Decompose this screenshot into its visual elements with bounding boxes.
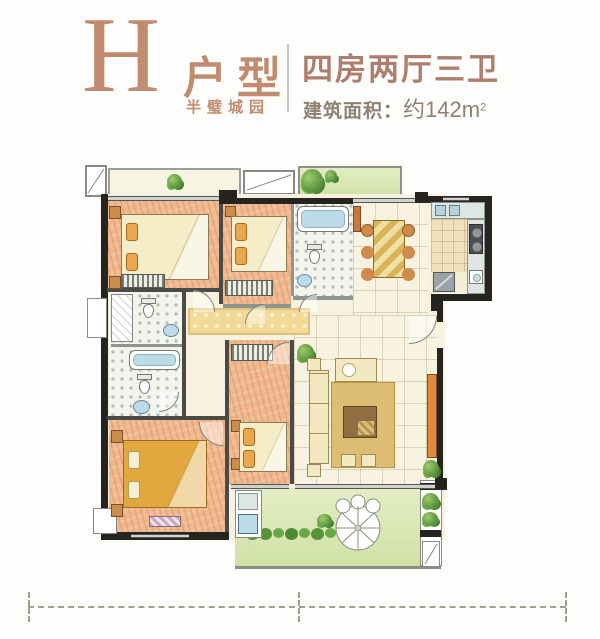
area-value: 约142m bbox=[403, 97, 480, 122]
daybed-icon bbox=[335, 358, 377, 382]
project-name: 半璧城园 bbox=[186, 96, 270, 117]
unit-letter: H bbox=[82, 2, 160, 110]
wall-baths-right bbox=[182, 292, 186, 416]
layout-summary: 四房两厅三卫 bbox=[302, 44, 500, 89]
nightstand-icon bbox=[111, 430, 123, 443]
wall-entry-top bbox=[437, 308, 443, 322]
stool-icon bbox=[341, 454, 356, 467]
kitchen-sink-basin1-icon bbox=[435, 205, 446, 216]
shower-icon bbox=[111, 294, 133, 342]
nightstand-icon bbox=[111, 504, 123, 517]
coffee-table-icon bbox=[343, 406, 377, 438]
sink-icon bbox=[133, 400, 150, 414]
dining-table-icon bbox=[373, 220, 405, 278]
side-table-icon bbox=[307, 464, 321, 477]
green-balcony-plant-icon bbox=[301, 169, 323, 193]
property-line-tick bbox=[565, 592, 567, 622]
side-table-icon bbox=[307, 358, 321, 371]
toilet-icon bbox=[137, 374, 152, 394]
area-line: 建筑面积：约142m2 bbox=[303, 92, 486, 124]
wall-bed2-bath bbox=[291, 204, 294, 296]
walkway-plant2-icon bbox=[422, 512, 438, 526]
bedroom1-dresser-icon bbox=[121, 274, 165, 288]
toilet-icon bbox=[307, 244, 323, 266]
wall-bath-top bbox=[293, 198, 353, 204]
window-master bbox=[131, 534, 189, 538]
kitchen-tile-area bbox=[431, 219, 467, 272]
washing-machine-icon bbox=[238, 514, 258, 534]
wall-kitchen-right bbox=[485, 196, 492, 301]
kitchen-sink2-icon bbox=[469, 270, 483, 284]
wall-bed3-living bbox=[290, 340, 294, 484]
wall-bed1-bottom bbox=[107, 288, 221, 292]
stove-icon bbox=[469, 224, 483, 254]
kitchen-sink-basin2-icon bbox=[449, 205, 460, 216]
sink-icon bbox=[297, 274, 312, 287]
window-kitchen bbox=[443, 197, 469, 201]
sliding-door-living-garden bbox=[295, 484, 435, 489]
nightstand-icon bbox=[109, 276, 121, 289]
header-divider bbox=[287, 44, 289, 112]
bathtub2-icon bbox=[129, 350, 180, 370]
floorplan-sheet: H 户型 半璧城园 四房两厅三卫 建筑面积：约142m2 bbox=[0, 0, 600, 639]
toilet-icon bbox=[141, 298, 156, 318]
wall-bathtop-bottom bbox=[293, 296, 353, 300]
ac-platform-left bbox=[87, 298, 107, 338]
green-balcony-plant2-icon bbox=[325, 170, 337, 182]
nightstand-icon bbox=[109, 206, 121, 219]
dining-chairs-left-icon bbox=[361, 224, 374, 237]
balcony-plant-icon bbox=[167, 174, 182, 189]
floorplan-drawing bbox=[85, 158, 495, 582]
area-label: 建筑面积： bbox=[303, 101, 403, 122]
wall-left bbox=[101, 194, 108, 534]
fridge-icon bbox=[433, 272, 455, 292]
garden-umbrella-icon bbox=[325, 492, 391, 558]
wall-master-bed3 bbox=[225, 340, 229, 532]
property-line bbox=[28, 606, 566, 608]
walkway-plant1-icon bbox=[422, 493, 439, 509]
wall-kitchen-bottom bbox=[431, 294, 492, 301]
property-line-tick bbox=[28, 592, 30, 622]
window-bedroom3 bbox=[231, 484, 289, 489]
bedroom2-bed-icon bbox=[231, 216, 287, 272]
wall-bath-master bbox=[107, 416, 227, 420]
wall-bedroom2-top bbox=[223, 198, 293, 204]
stool-icon bbox=[361, 454, 376, 467]
pier-top-b bbox=[415, 192, 428, 203]
walkway-pier-mid bbox=[420, 530, 441, 537]
laundry-sink bbox=[238, 493, 258, 510]
bathtub-icon bbox=[297, 206, 349, 232]
bedroom3-bed-icon bbox=[239, 422, 287, 472]
master-bed-icon bbox=[123, 440, 207, 508]
dining-chairs-right-icon bbox=[402, 224, 415, 237]
area-exponent: 2 bbox=[480, 102, 486, 114]
sideboard-icon bbox=[353, 206, 361, 232]
ac-platform-top-left bbox=[85, 165, 107, 197]
entry-plant-icon bbox=[423, 460, 439, 477]
sofa-icon bbox=[309, 370, 329, 464]
bedroom1-bed-icon bbox=[121, 214, 209, 280]
window-bedroom1 bbox=[108, 196, 221, 201]
planter-box-top bbox=[243, 170, 295, 195]
bedroom2-wardrobe-icon bbox=[225, 280, 273, 296]
wall-bath-divider bbox=[111, 344, 182, 347]
master-bench-icon bbox=[149, 516, 181, 527]
garden-rail bbox=[235, 566, 441, 569]
pier-garden bbox=[435, 478, 447, 490]
property-line-tick bbox=[298, 592, 300, 622]
tv-cabinet-icon bbox=[427, 374, 437, 458]
sink-icon bbox=[163, 324, 179, 337]
walkway-shaft bbox=[422, 541, 440, 567]
